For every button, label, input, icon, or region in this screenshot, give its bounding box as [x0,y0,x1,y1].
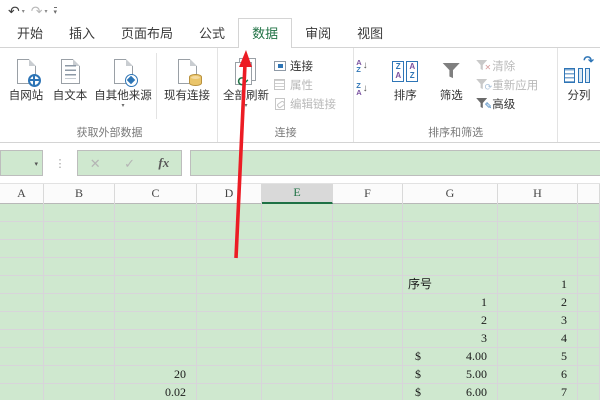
grid-cell-H8[interactable]: 4 [498,330,578,348]
group-connections: ⟳ 全部刷新 ▾ 连接 属性 编辑链接 [218,48,354,142]
grid-cell-E11[interactable] [262,384,333,400]
grid-cell-x9[interactable] [578,348,600,366]
grid-cell-x8[interactable] [578,330,600,348]
column-header-B[interactable]: B [44,184,115,204]
tab-data[interactable]: 数据 [238,18,292,48]
grid-cell-F8[interactable] [333,330,403,348]
grid-cell-G11[interactable]: $6.00 [403,384,498,400]
grid-cell-E1[interactable] [262,204,333,222]
sheet-row [0,258,600,276]
grid-cell-H10[interactable]: 6 [498,366,578,384]
clear-filter-button[interactable]: ✕ 清除 [474,56,538,75]
grid-cell-A10[interactable] [0,366,44,384]
column-header-A[interactable]: A [0,184,44,204]
grid-cell-C5[interactable] [115,276,197,294]
tab-formulas[interactable]: 公式 [186,19,238,47]
grid-cell-x7[interactable] [578,312,600,330]
grid-cell-E7[interactable] [262,312,333,330]
sort-descending-button[interactable]: Z A ↓ [356,82,382,96]
grid-cell-B6[interactable] [44,294,115,312]
from-other-sources-icon [114,59,133,84]
grid-cell-A11[interactable] [0,384,44,400]
grid-cell-E2[interactable] [262,222,333,240]
grid-cell-B11[interactable] [44,384,115,400]
tab-insert[interactable]: 插入 [56,19,108,47]
sheet-row: 23 [0,312,600,330]
sheet-row: 20$5.006 [0,366,600,384]
grid-cell-D3[interactable] [197,240,262,258]
grid-cell-C7[interactable] [115,312,197,330]
cancel-icon[interactable]: ✕ [90,157,101,170]
grid-cell-G10[interactable]: $5.00 [403,366,498,384]
grid-cell-H2[interactable] [498,222,578,240]
edit-links-icon [275,98,285,110]
grid-cell-C2[interactable] [115,222,197,240]
grid-cell-C3[interactable] [115,240,197,258]
column-header-partial[interactable] [578,184,600,204]
excel-window: ↶ ▾ ↷ ▾ ▾ 开始 插入 页面布局 公式 数据 审阅 视图 自网站 [0,0,600,400]
worksheet: ABCDEFGH 序号1122334$4.00520$5.0060.02$6.0… [0,184,600,400]
grid-cell-A9[interactable] [0,348,44,366]
advanced-filter-button[interactable]: ✎ 高级 [474,94,538,113]
sheet-row: 12 [0,294,600,312]
sort-icon: Z A A Z [392,61,418,82]
grid-cell-B2[interactable] [44,222,115,240]
column-headers: ABCDEFGH [0,184,600,204]
grid-cell-G5[interactable]: 序号 [403,276,498,294]
properties-icon [274,79,285,90]
properties-button[interactable]: 属性 [272,75,336,94]
grid-cell-B3[interactable] [44,240,115,258]
grid-cell-B5[interactable] [44,276,115,294]
grid-cell-H6[interactable]: 2 [498,294,578,312]
grid-cell-A4[interactable] [0,258,44,276]
group-sort-filter: A Z ↓ Z A ↓ [354,48,558,142]
sheet-row [0,222,600,240]
grid-cell-G1[interactable] [403,204,498,222]
grid-cell-E9[interactable] [262,348,333,366]
grid-cell-x10[interactable] [578,366,600,384]
customize-qat-icon: ▾ [54,7,58,16]
grid-cell-E6[interactable] [262,294,333,312]
formula-bar: ▾ ⋮ ✕ ✓ fx [0,143,600,184]
connections-small-buttons: 连接 属性 编辑链接 [272,50,336,113]
grid-cell-H7[interactable]: 3 [498,312,578,330]
grid-cell-F4[interactable] [333,258,403,276]
grid-cell-H5[interactable]: 1 [498,276,578,294]
grid-cell-D5[interactable] [197,276,262,294]
formula-buttons: ✕ ✓ fx [77,150,182,176]
sheet-row: 0.02$6.007 [0,384,600,400]
grid-cell-E4[interactable] [262,258,333,276]
group-get-external-data: 自网站 自文本 自其他来源 ▾ 现有连接 获取外部数据 [2,48,218,142]
tab-page-layout[interactable]: 页面布局 [108,19,186,47]
undo-dropdown-icon[interactable]: ▾ [22,8,25,15]
grid-cell-E3[interactable] [262,240,333,258]
grid-cell-H3[interactable] [498,240,578,258]
grid-cell-D1[interactable] [197,204,262,222]
sort-ascending-button[interactable]: A Z ↓ [356,59,382,73]
column-header-C[interactable]: C [115,184,197,204]
grid-cell-H11[interactable]: 7 [498,384,578,400]
filter-small-buttons: ✕ 清除 ⟳ 重新应用 ✎ 高级 [474,50,538,113]
group-label-sort-filter: 排序和筛选 [356,126,555,141]
formula-bar-resize-handle[interactable]: ⋮ [43,157,77,170]
grid-cell-x1[interactable] [578,204,600,222]
undo-icon: ↶ [8,4,20,18]
from-text-icon [61,59,80,84]
sheet-row [0,240,600,258]
grid-cell-x11[interactable] [578,384,600,400]
grid-cell-H9[interactable]: 5 [498,348,578,366]
edit-links-button[interactable]: 编辑链接 [272,94,336,113]
from-web-button[interactable]: 自网站 [4,50,48,103]
column-header-D[interactable]: D [197,184,262,204]
grid-cell-C4[interactable] [115,258,197,276]
grid-cell-D10[interactable] [197,366,262,384]
undo-button[interactable]: ↶ ▾ [8,4,25,18]
group-data-tools-partial: ↷ 分列 [558,48,600,142]
text-to-columns-button[interactable]: ↷ 分列 [560,50,598,103]
from-other-sources-button[interactable]: 自其他来源 ▾ [92,50,154,110]
grid-cell-B4[interactable] [44,258,115,276]
dropdown-caret-icon: ▾ [244,103,247,110]
sheet-row: 序号1 [0,276,600,294]
grid-cell-C10[interactable]: 20 [115,366,197,384]
sheet-row: $4.005 [0,348,600,366]
grid-cell-x3[interactable] [578,240,600,258]
grid-cell-H1[interactable] [498,204,578,222]
name-box[interactable]: ▾ [0,150,43,176]
grid-cell-F3[interactable] [333,240,403,258]
grid-cell-G8[interactable]: 3 [403,330,498,348]
formula-input[interactable] [190,150,600,176]
refresh-all-button[interactable]: ⟳ 全部刷新 ▾ [220,50,272,110]
column-header-E[interactable]: E [262,184,333,204]
redo-button[interactable]: ↷ ▾ [31,4,48,18]
ribbon-tab-bar: 开始 插入 页面布局 公式 数据 审阅 视图 [0,22,600,48]
customize-qat-button[interactable]: ▾ [54,7,58,16]
grid-cell-D9[interactable] [197,348,262,366]
grid-cell-G3[interactable] [403,240,498,258]
grid-cell-C11[interactable]: 0.02 [115,384,197,400]
column-header-F[interactable]: F [333,184,403,204]
text-to-columns-icon: ↷ [564,58,594,84]
grid-cell-D4[interactable] [197,258,262,276]
grid-cell-x4[interactable] [578,258,600,276]
sheet-row: 34 [0,330,600,348]
filter-button[interactable]: 筛选 [428,50,474,103]
grid-cell-D6[interactable] [197,294,262,312]
grid-cell-C8[interactable] [115,330,197,348]
enter-icon[interactable]: ✓ [124,157,135,170]
grid-cell-E8[interactable] [262,330,333,348]
grid-cell-G7[interactable]: 2 [403,312,498,330]
grid-cell-B1[interactable] [44,204,115,222]
grid-cell-D7[interactable] [197,312,262,330]
group-inner-divider [156,53,157,119]
connections-icon [274,61,286,71]
grid-cell-F2[interactable] [333,222,403,240]
redo-dropdown-icon[interactable]: ▾ [44,8,47,15]
sort-mini-buttons: A Z ↓ Z A ↓ [356,50,382,105]
group-label-connections: 连接 [220,126,351,141]
sort-button[interactable]: Z A A Z 排序 [382,50,428,103]
grid-cell-x5[interactable] [578,276,600,294]
sheet-row [0,204,600,222]
grid-cell-F7[interactable] [333,312,403,330]
grid-cell-F1[interactable] [333,204,403,222]
grid-cell-A3[interactable] [0,240,44,258]
group-label-get-external-data: 获取外部数据 [4,126,215,141]
reapply-filter-button[interactable]: ⟳ 重新应用 [474,75,538,94]
grid-cell-G9[interactable]: $4.00 [403,348,498,366]
tab-home[interactable]: 开始 [4,19,56,47]
grid-cell-x2[interactable] [578,222,600,240]
grid-cell-E10[interactable] [262,366,333,384]
grid-cell-G4[interactable] [403,258,498,276]
dropdown-caret-icon: ▾ [121,103,124,110]
grid-cell-E5[interactable] [262,276,333,294]
grid-cell-D11[interactable] [197,384,262,400]
grid-cell-F9[interactable] [333,348,403,366]
refresh-all-icon: ⟳ [235,62,252,85]
grid-cell-G2[interactable] [403,222,498,240]
grid-cell-A5[interactable] [0,276,44,294]
grid-cell-B9[interactable] [44,348,115,366]
grid-cell-A6[interactable] [0,294,44,312]
grid-cell-D2[interactable] [197,222,262,240]
grid-cell-F10[interactable] [333,366,403,384]
grid-cell-F11[interactable] [333,384,403,400]
existing-connections-icon [178,59,197,84]
grid-cell-F6[interactable] [333,294,403,312]
filter-icon [442,63,460,80]
sort-ascending-icon: ↓ [363,61,368,71]
grid-cell-A7[interactable] [0,312,44,330]
cell-grid: 序号1122334$4.00520$5.0060.02$6.007 [0,204,600,400]
grid-cell-C6[interactable] [115,294,197,312]
grid-cell-A1[interactable] [0,204,44,222]
grid-cell-A2[interactable] [0,222,44,240]
grid-cell-B10[interactable] [44,366,115,384]
name-box-dropdown-icon[interactable]: ▾ [34,160,38,168]
grid-cell-C1[interactable] [115,204,197,222]
connections-button[interactable]: 连接 [272,56,336,75]
grid-cell-G6[interactable]: 1 [403,294,498,312]
tab-view[interactable]: 视图 [344,19,396,47]
insert-function-icon[interactable]: fx [158,155,169,171]
grid-cell-F5[interactable] [333,276,403,294]
grid-cell-B8[interactable] [44,330,115,348]
tab-review[interactable]: 审阅 [292,19,344,47]
column-header-H[interactable]: H [498,184,578,204]
ribbon-data-tab: 自网站 自文本 自其他来源 ▾ 现有连接 获取外部数据 [0,48,600,143]
grid-cell-A8[interactable] [0,330,44,348]
column-header-G[interactable]: G [403,184,498,204]
from-text-button[interactable]: 自文本 [48,50,92,103]
grid-cell-C9[interactable] [115,348,197,366]
grid-cell-D8[interactable] [197,330,262,348]
from-web-icon [17,59,36,84]
grid-cell-B7[interactable] [44,312,115,330]
sort-descending-icon: ↓ [363,84,368,94]
redo-icon: ↷ [31,4,43,18]
grid-cell-H4[interactable] [498,258,578,276]
existing-connections-button[interactable]: 现有连接 [159,50,215,103]
grid-cell-x6[interactable] [578,294,600,312]
